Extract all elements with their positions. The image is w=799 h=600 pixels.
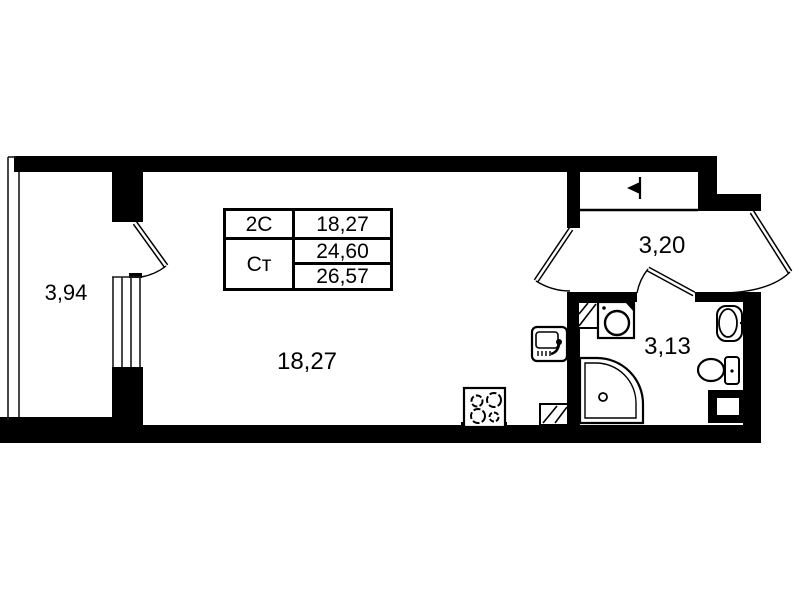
bathroom-door [637, 269, 694, 294]
balcony-window [112, 277, 141, 367]
wall-topright-block [698, 172, 717, 211]
room-area-label: 18,27 [272, 350, 342, 374]
door-leaf-inner [648, 269, 694, 294]
door-leaf-inner [536, 229, 571, 281]
table-cell-type-1: 2С [226, 211, 292, 237]
stove-icon [464, 388, 505, 427]
wall-right [743, 292, 761, 443]
wall-topright-step [717, 194, 761, 211]
hall-door [536, 229, 571, 291]
washbasin-icon [717, 306, 747, 341]
shower-icon [580, 358, 643, 423]
door-swing-arc [141, 266, 166, 277]
wall-bath-top-left [567, 292, 637, 302]
table-cell-area-3: 26,57 [295, 265, 390, 288]
wall-bottom-main [143, 425, 761, 443]
floor-plan-drawing [0, 0, 799, 600]
vent-shaft-icon-kitchen [540, 404, 568, 425]
door-leaf-inner [752, 212, 790, 272]
bathroom-area-label: 3,13 [640, 335, 695, 359]
vent-shaft-icon-bath [578, 302, 598, 328]
entry-arrow-icon [627, 177, 640, 199]
floor-plan: 2С 18,27 Ст 24,60 26,57 3,94 18,27 3,20 … [0, 0, 799, 600]
balcony-area-label: 3,94 [40, 282, 92, 304]
apartment-info-table: 2С 18,27 Ст 24,60 26,57 [223, 208, 393, 291]
duct-icon [708, 390, 745, 423]
walls [0, 156, 761, 443]
toilet-icon [698, 357, 739, 384]
table-cell-area-1: 18,27 [295, 211, 390, 237]
door-swing-arc [536, 281, 570, 291]
wall-hall-left [567, 172, 580, 228]
door-swing-arc [700, 272, 790, 293]
table-cell-area-2: 24,60 [295, 240, 390, 262]
wall-bottom-balcony [0, 417, 143, 443]
entry-door [700, 212, 790, 293]
balcony-glazing [8, 157, 19, 420]
kitchen-sink-icon [532, 327, 567, 361]
hall-area-label: 3,20 [633, 234, 691, 258]
wall-balcony-pier-top [112, 158, 143, 222]
balcony-door [135, 223, 166, 277]
table-cell-type-2: Ст [226, 240, 292, 288]
door-swing-arc [637, 269, 648, 293]
washing-machine-icon [598, 302, 634, 338]
door-leaf-inner [135, 223, 166, 266]
